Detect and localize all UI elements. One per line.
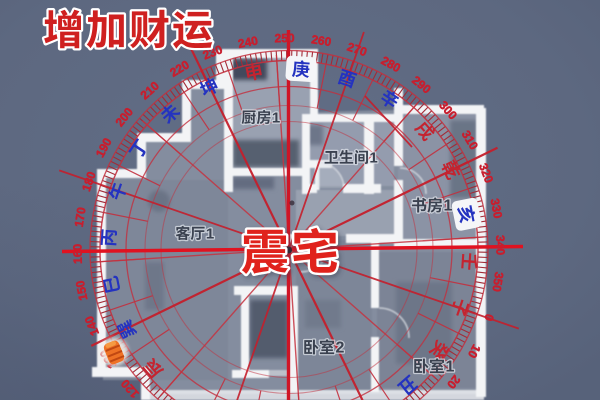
svg-text:1: 1 (272, 109, 280, 126)
svg-text:2: 2 (336, 340, 345, 357)
svg-text:1: 1 (444, 198, 453, 215)
svg-text:1: 1 (206, 225, 214, 242)
svg-text:1: 1 (446, 359, 455, 376)
svg-text:1: 1 (369, 149, 377, 166)
svg-text:250: 250 (274, 31, 295, 45)
svg-text:160: 160 (70, 243, 84, 264)
svg-text:340: 340 (493, 235, 507, 256)
